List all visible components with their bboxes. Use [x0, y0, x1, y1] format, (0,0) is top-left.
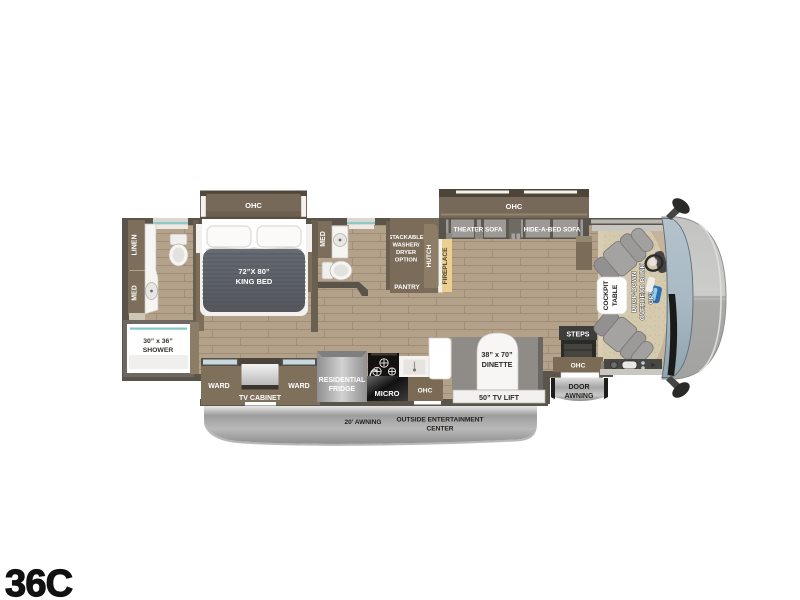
svg-text:RESIDENTIAL: RESIDENTIAL — [319, 377, 366, 384]
svg-text:STEPS: STEPS — [567, 332, 590, 339]
svg-text:KING BED: KING BED — [236, 277, 273, 286]
svg-text:SHOWER: SHOWER — [143, 347, 174, 354]
svg-text:MED: MED — [132, 285, 139, 301]
svg-text:TABLE: TABLE — [612, 284, 619, 306]
svg-text:DROP-DOWN: DROP-DOWN — [631, 271, 638, 312]
svg-text:WARD: WARD — [208, 383, 229, 390]
svg-text:AWNING: AWNING — [565, 393, 594, 400]
svg-text:WASHER/: WASHER/ — [392, 243, 419, 249]
svg-text:FRIDGE: FRIDGE — [329, 386, 356, 393]
svg-text:COCKPIT: COCKPIT — [603, 281, 610, 311]
svg-text:OHC: OHC — [571, 363, 586, 370]
svg-text:FIREPLACE: FIREPLACE — [442, 247, 449, 285]
svg-text:72”X 80”: 72”X 80” — [238, 267, 270, 276]
svg-text:HIDE-A-BED SOFA: HIDE-A-BED SOFA — [524, 227, 581, 234]
svg-text:MED: MED — [320, 231, 327, 247]
svg-text:WARD: WARD — [288, 383, 309, 390]
svg-text:HUTCH: HUTCH — [426, 244, 433, 267]
svg-text:STACKABLE: STACKABLE — [388, 235, 423, 241]
svg-text:LINEN: LINEN — [132, 235, 139, 256]
svg-text:DINETTE: DINETTE — [482, 360, 513, 369]
svg-text:OHC: OHC — [245, 201, 262, 210]
svg-text:20’ AWNING: 20’ AWNING — [345, 419, 382, 426]
svg-text:30” x 36”: 30” x 36” — [143, 338, 172, 345]
svg-text:OUTSIDE ENTERTAINMENT: OUTSIDE ENTERTAINMENT — [396, 417, 483, 424]
svg-text:38” x 70”: 38” x 70” — [481, 350, 513, 359]
svg-text:36C: 36C — [5, 563, 73, 600]
svg-text:DOOR: DOOR — [569, 384, 590, 391]
svg-text:OHC: OHC — [506, 202, 523, 211]
svg-text:50” TV LIFT: 50” TV LIFT — [479, 393, 520, 402]
svg-text:MICRO: MICRO — [375, 389, 400, 398]
svg-text:TV CABINET: TV CABINET — [239, 395, 282, 402]
svg-text:OPTION: OPTION — [395, 258, 417, 264]
svg-text:DRYER: DRYER — [396, 250, 417, 256]
svg-text:THEATER SOFA: THEATER SOFA — [454, 227, 503, 234]
svg-text:OHC: OHC — [418, 388, 433, 395]
svg-text:CENTER: CENTER — [426, 426, 453, 433]
svg-text:PANTRY: PANTRY — [394, 284, 420, 291]
svg-text:OVERHEAD BUNK: OVERHEAD BUNK — [640, 263, 647, 320]
